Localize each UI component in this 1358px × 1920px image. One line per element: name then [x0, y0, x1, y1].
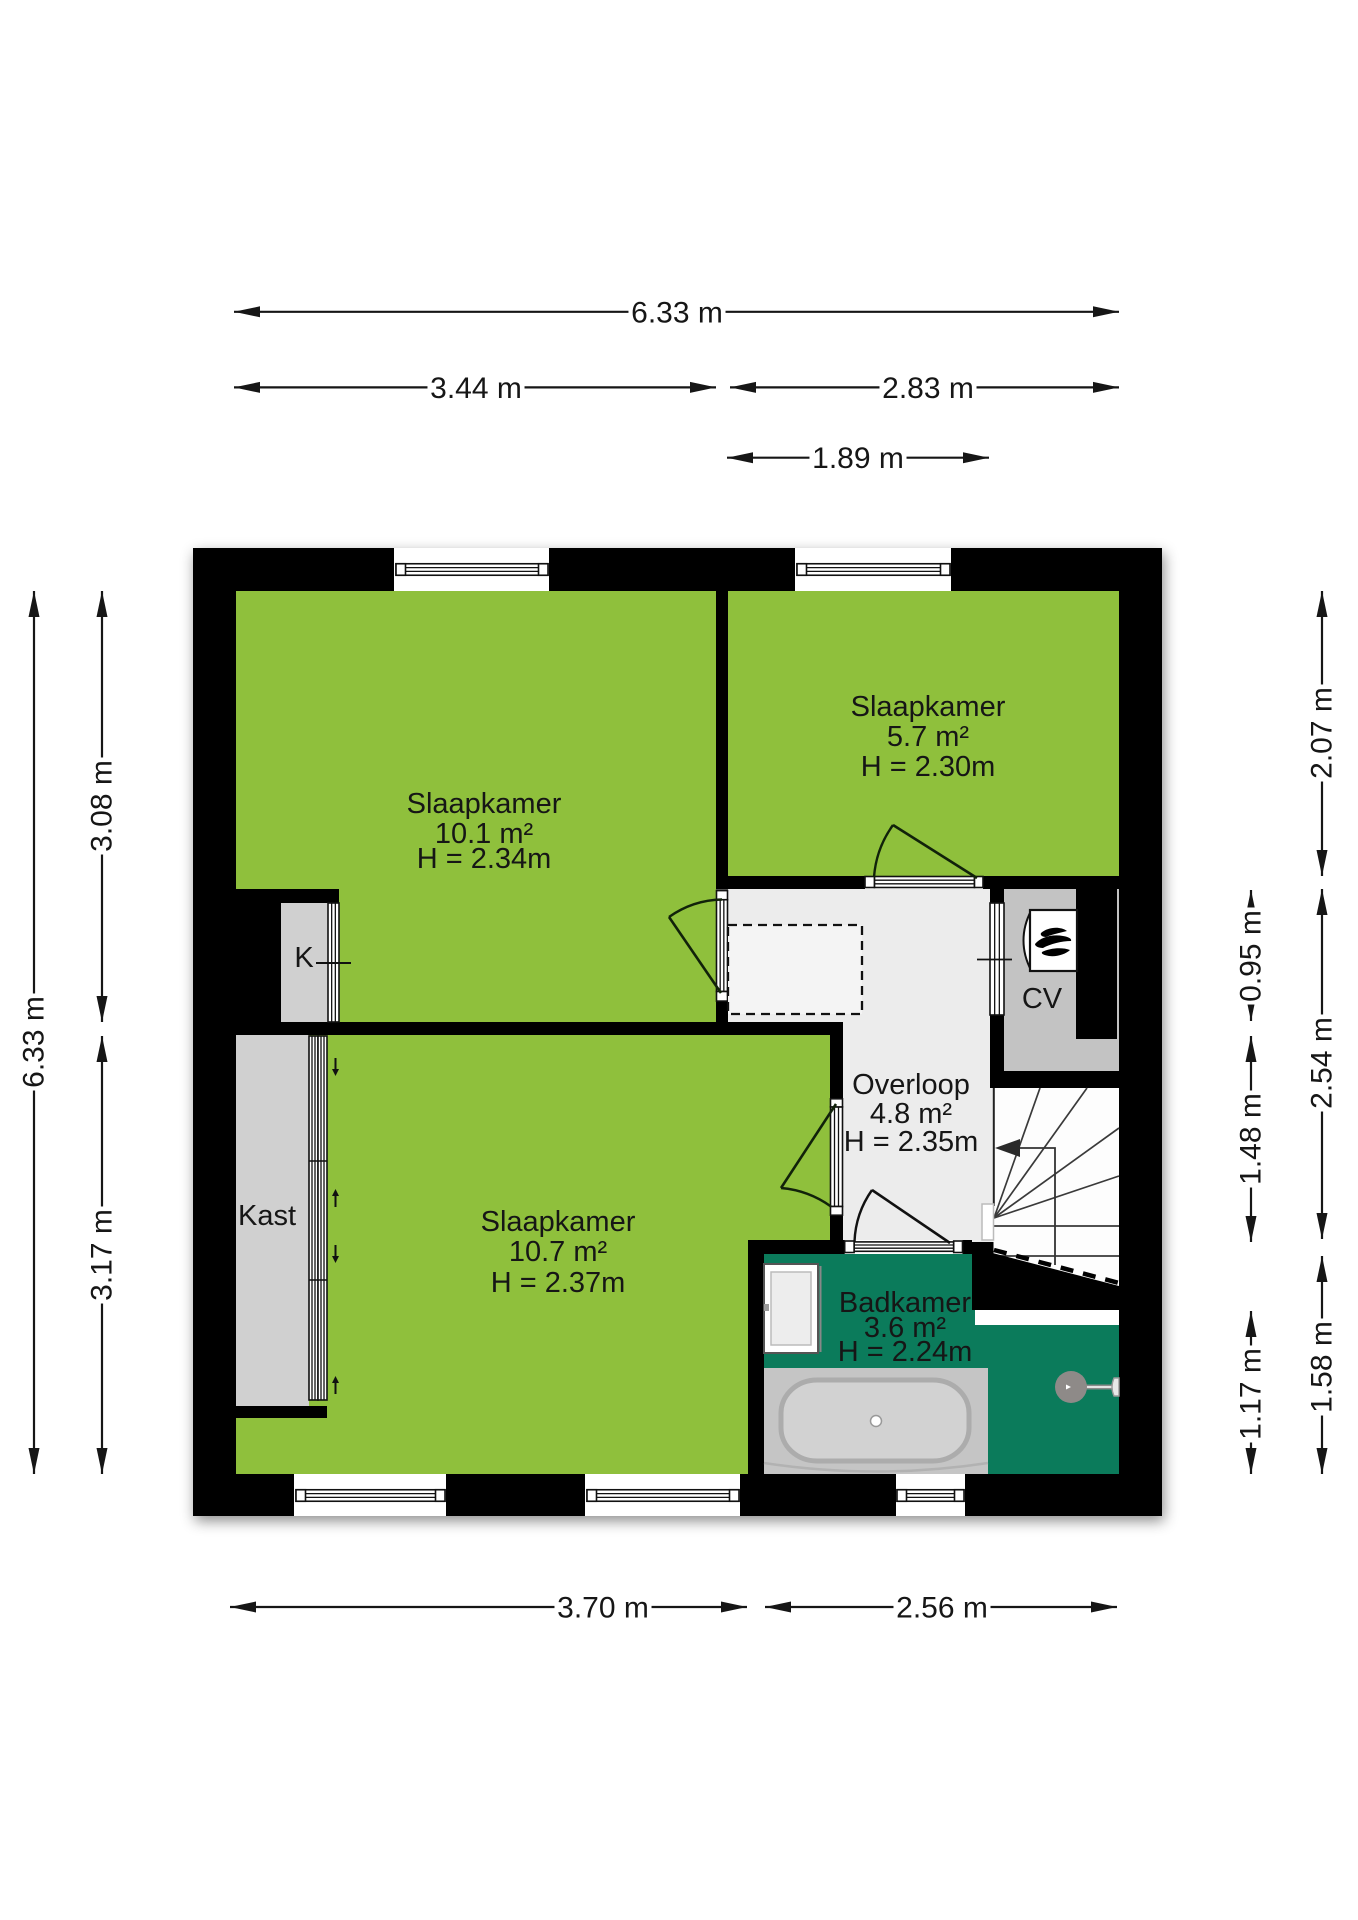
svg-text:K: K	[294, 942, 314, 974]
svg-text:3.08 m: 3.08 m	[86, 760, 119, 852]
svg-text:6.33 m: 6.33 m	[631, 296, 723, 329]
svg-text:H = 2.34m: H = 2.34m	[417, 843, 552, 875]
svg-text:1.48 m: 1.48 m	[1235, 1093, 1268, 1185]
svg-text:3.44 m: 3.44 m	[430, 372, 522, 405]
svg-text:2.07 m: 2.07 m	[1306, 687, 1339, 779]
svg-text:3.70 m: 3.70 m	[557, 1592, 649, 1625]
svg-text:H = 2.37m: H = 2.37m	[491, 1267, 626, 1299]
svg-text:2.56 m: 2.56 m	[896, 1592, 988, 1625]
svg-text:Kast: Kast	[238, 1200, 296, 1232]
svg-text:10.7 m²: 10.7 m²	[509, 1236, 608, 1268]
svg-text:1.89 m: 1.89 m	[812, 442, 904, 475]
svg-text:H = 2.35m: H = 2.35m	[844, 1126, 979, 1158]
svg-text:Slaapkamer: Slaapkamer	[851, 691, 1006, 723]
svg-text:H = 2.30m: H = 2.30m	[861, 751, 996, 783]
svg-text:Slaapkamer: Slaapkamer	[407, 788, 562, 820]
svg-text:2.83 m: 2.83 m	[882, 372, 974, 405]
svg-text:5.7 m²: 5.7 m²	[887, 721, 970, 753]
svg-text:H = 2.24m: H = 2.24m	[838, 1336, 973, 1368]
svg-text:Overloop: Overloop	[852, 1069, 970, 1101]
svg-text:1.58 m: 1.58 m	[1306, 1321, 1339, 1413]
svg-text:1.17 m: 1.17 m	[1235, 1348, 1268, 1440]
svg-text:CV: CV	[1022, 983, 1063, 1015]
svg-text:2.54 m: 2.54 m	[1306, 1017, 1339, 1109]
svg-text:3.17 m: 3.17 m	[86, 1209, 119, 1301]
svg-text:0.95 m: 0.95 m	[1235, 910, 1268, 1002]
svg-text:Slaapkamer: Slaapkamer	[481, 1206, 636, 1238]
svg-text:6.33 m: 6.33 m	[18, 996, 51, 1088]
